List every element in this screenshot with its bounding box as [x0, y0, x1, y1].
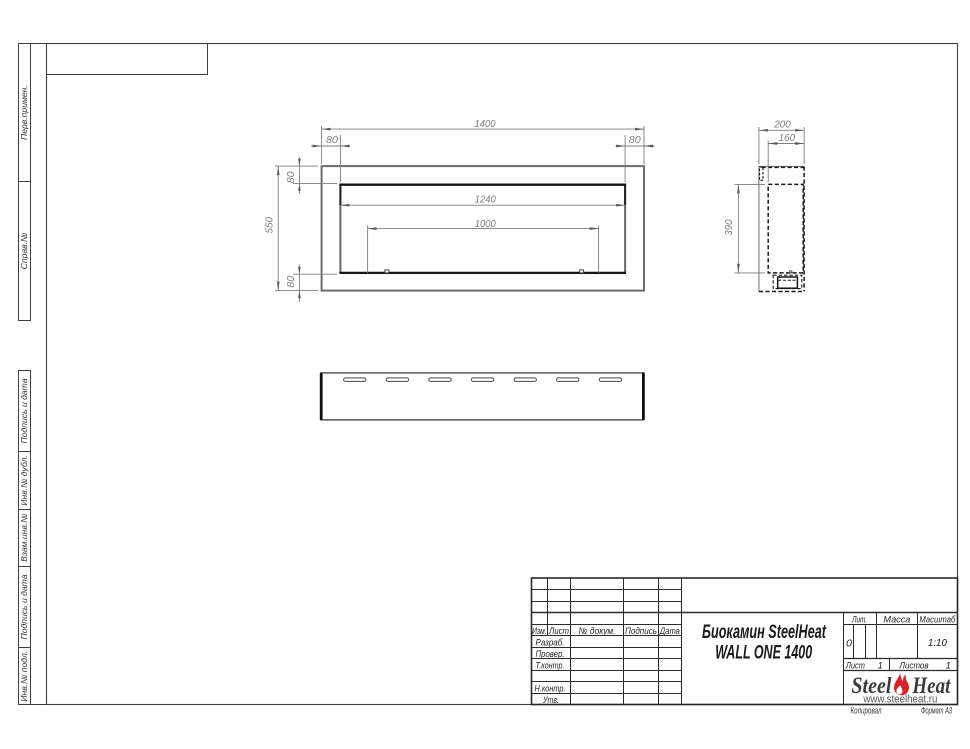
svg-text:80: 80: [629, 134, 641, 146]
svg-text:550: 550: [263, 217, 275, 234]
svg-text:Листов: Листов: [899, 660, 929, 671]
svg-text:Копировал: Копировал: [851, 705, 882, 715]
svg-text:1: 1: [946, 660, 951, 671]
svg-text:Подпись: Подпись: [625, 626, 657, 637]
svg-text:Т.контр.: Т.контр.: [536, 661, 565, 672]
svg-text:Подпись и дата: Подпись и дата: [19, 378, 29, 443]
svg-text:Подпись и дата: Подпись и дата: [19, 574, 29, 639]
svg-text:Инв.№ подл.: Инв.№ подл.: [19, 651, 29, 702]
svg-text:Дата: Дата: [659, 626, 680, 637]
svg-text:№ докум.: № докум.: [579, 626, 616, 637]
svg-text:160: 160: [779, 132, 796, 144]
svg-text:Лист: Лист: [548, 626, 569, 637]
svg-text:Лист: Лист: [845, 660, 865, 671]
svg-text:Инв.№ дубл.: Инв.№ дубл.: [19, 455, 29, 505]
svg-text:Разраб.: Разраб.: [536, 638, 565, 649]
svg-text:80: 80: [326, 134, 338, 146]
svg-text:Масштаб: Масштаб: [919, 614, 956, 625]
svg-text:Масса: Масса: [883, 614, 910, 625]
svg-text:Утв.: Утв.: [542, 695, 559, 706]
svg-text:Лит.: Лит.: [851, 614, 867, 625]
svg-text:WALL ONE 1400: WALL ONE 1400: [715, 643, 812, 664]
svg-text:80: 80: [285, 276, 297, 288]
svg-text:1400: 1400: [475, 118, 496, 130]
svg-text:Провер.: Провер.: [536, 649, 565, 660]
svg-text:200: 200: [773, 119, 791, 131]
svg-text:Взам.инв.№: Взам.инв.№: [19, 513, 29, 561]
svg-text:1240: 1240: [475, 193, 496, 205]
svg-text:Изм.: Изм.: [532, 626, 547, 637]
svg-text:www.steelheat.ru: www.steelheat.ru: [863, 694, 938, 706]
svg-text:Формат А3: Формат А3: [921, 705, 952, 715]
svg-text:390: 390: [723, 219, 735, 236]
svg-text:Перв.примен.: Перв.примен.: [19, 85, 29, 140]
svg-text:Биокамин SteelHeat: Биокамин SteelHeat: [702, 622, 826, 643]
svg-text:1: 1: [878, 660, 883, 671]
svg-text:Н.контр.: Н.контр.: [535, 684, 566, 695]
svg-text:1000: 1000: [475, 218, 496, 230]
svg-text:0: 0: [846, 637, 852, 649]
svg-text:Справ.№: Справ.№: [19, 233, 29, 270]
svg-text:80: 80: [285, 171, 297, 183]
svg-text:1:10: 1:10: [928, 637, 947, 649]
